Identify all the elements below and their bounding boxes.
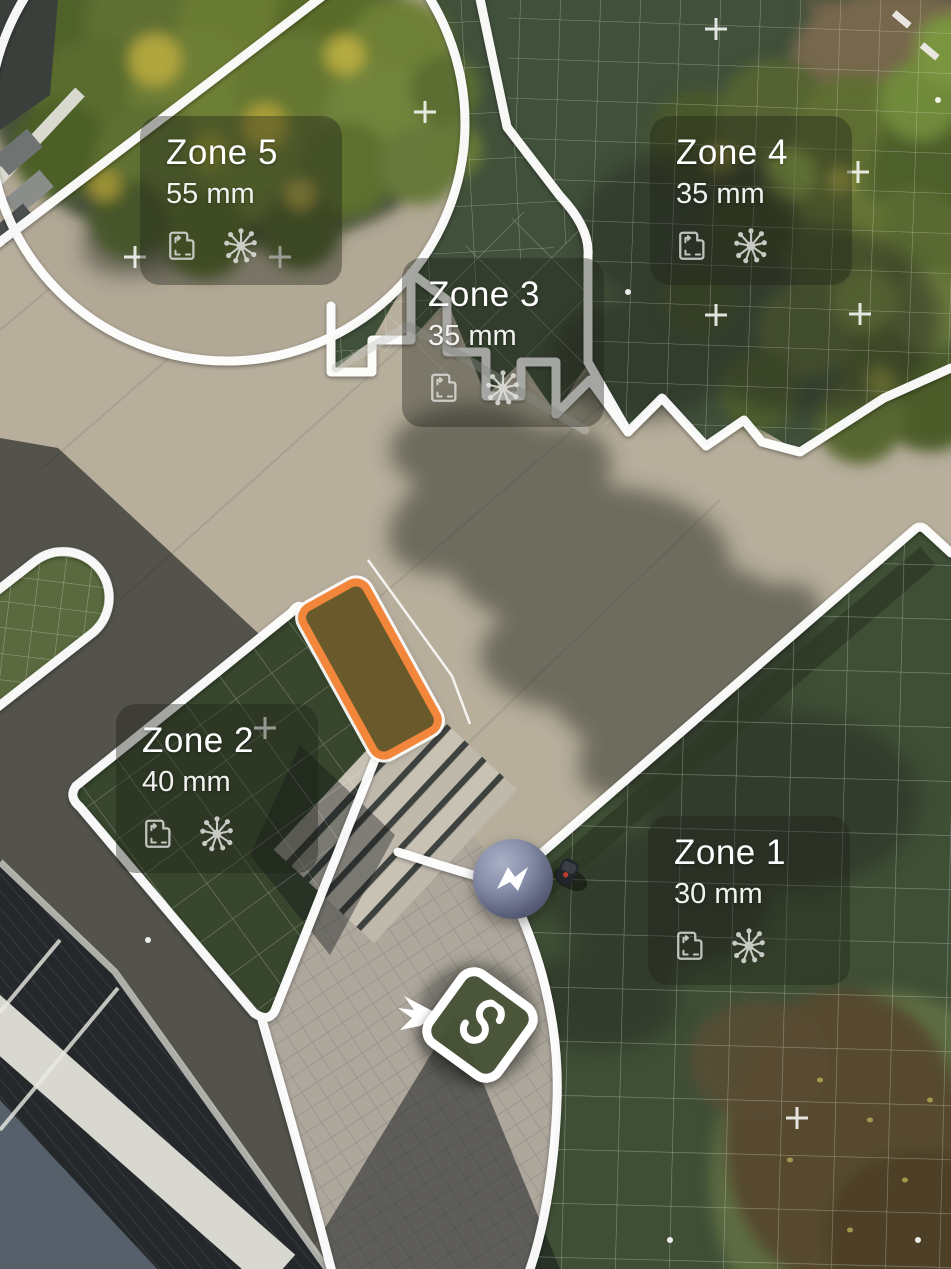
- zone-boundary-icon: [142, 817, 176, 851]
- zone-boundary-icon: [428, 371, 462, 405]
- dandelion-icon: [198, 815, 236, 853]
- zone-cutting-height: 55 mm: [166, 178, 316, 211]
- zone-name: Zone 5: [166, 134, 316, 173]
- zone-card-zone-4[interactable]: Zone 4 35 mm: [650, 116, 852, 285]
- dandelion-icon: [222, 227, 260, 265]
- zone-name: Zone 4: [676, 134, 826, 173]
- zone-boundary-icon: [166, 229, 200, 263]
- zone-boundary-icon: [674, 929, 708, 963]
- zone-card-zone-1[interactable]: Zone 1 30 mm: [648, 816, 850, 985]
- zone-cutting-height: 35 mm: [428, 320, 578, 353]
- dandelion-icon: [484, 369, 522, 407]
- zone-cutting-height: 40 mm: [142, 766, 292, 799]
- zone-cutting-height: 30 mm: [674, 878, 824, 911]
- bolt-logo-icon: [491, 861, 535, 897]
- charging-dock-icon: [443, 987, 518, 1063]
- zone-name: Zone 1: [674, 834, 824, 873]
- dandelion-icon: [732, 227, 770, 265]
- zone-name: Zone 2: [142, 722, 292, 761]
- zone-cutting-height: 35 mm: [676, 178, 826, 211]
- mowing-map-view: Zone 5 55 mm Zone 4 35 mm Zone 3 35 mm Z…: [0, 0, 951, 1269]
- zone-card-zone-5[interactable]: Zone 5 55 mm: [140, 116, 342, 285]
- zone-name: Zone 3: [428, 276, 578, 315]
- dandelion-icon: [730, 927, 768, 965]
- zone-card-zone-2[interactable]: Zone 2 40 mm: [116, 704, 318, 873]
- zone-card-zone-3[interactable]: Zone 3 35 mm: [402, 258, 604, 427]
- zone-boundary-icon: [676, 229, 710, 263]
- robot-position-marker[interactable]: [473, 839, 553, 919]
